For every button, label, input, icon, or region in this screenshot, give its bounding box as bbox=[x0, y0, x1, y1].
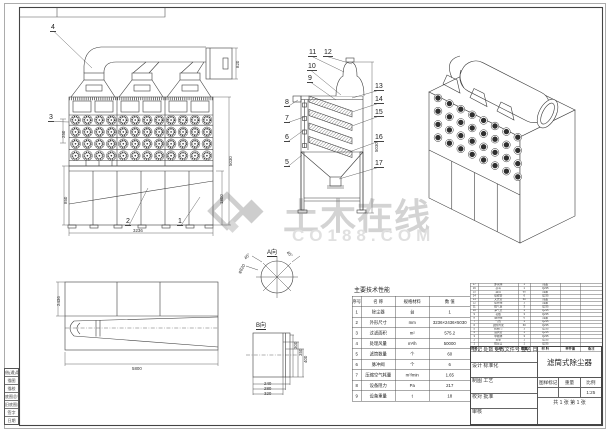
tech-cell: 个 bbox=[395, 349, 429, 360]
tech-cell: 个 bbox=[395, 359, 429, 370]
tech-cell: 217 bbox=[429, 380, 470, 391]
tech-cell: m³/min bbox=[395, 370, 429, 381]
margin-row: 借(通)用件登记 bbox=[5, 369, 18, 377]
tech-row: 9设备重量t18 bbox=[352, 391, 470, 402]
leader-line bbox=[288, 130, 304, 142]
scale-value-cell bbox=[559, 388, 580, 397]
callout-14: 14 bbox=[374, 96, 384, 104]
margin-row: 旧底图总号 bbox=[5, 401, 18, 409]
leader-line bbox=[181, 197, 200, 226]
title-block-scale-values: 1:25 bbox=[538, 388, 601, 398]
leader-line bbox=[54, 32, 92, 69]
callout-17: 17 bbox=[374, 160, 384, 168]
dimension-text: 2436 bbox=[56, 296, 61, 306]
detail-b-title: B向 bbox=[256, 320, 266, 330]
scale-value-cell bbox=[538, 388, 559, 397]
tech-row: 8设备阻力Pa217 bbox=[352, 380, 470, 391]
drawing-title: 滤筒式除尘器 bbox=[538, 347, 601, 378]
tech-cell: 9 bbox=[352, 391, 361, 402]
scale-value-cell: 1:25 bbox=[581, 388, 601, 397]
margin-row: 底图总号 bbox=[5, 393, 18, 401]
tech-cell: 60 bbox=[429, 349, 470, 360]
tech-row: 7压缩空气耗量m³/min1.65 bbox=[352, 370, 470, 381]
tech-cell: 1 bbox=[429, 307, 470, 318]
isometric-view bbox=[429, 56, 575, 243]
detail-a-title: A向 bbox=[267, 247, 277, 257]
tech-cell: 50000 bbox=[429, 338, 470, 349]
callout-10: 10 bbox=[307, 63, 317, 71]
tech-cell: 575.2 bbox=[429, 328, 470, 339]
dimension-text: 320 bbox=[264, 391, 271, 396]
leader-line bbox=[52, 122, 69, 123]
tech-header: 数 值 bbox=[429, 296, 470, 307]
scale-header-cell: 比例 bbox=[581, 378, 601, 387]
scale-header-cell: 重量 bbox=[559, 378, 580, 387]
tech-cell: 3 bbox=[352, 328, 361, 339]
tech-cell: 过滤面积 bbox=[361, 328, 395, 339]
title-block: 标记 处数 更改文件号 签名 日期设计 标准化制图 工艺校对 批准审核 滤筒式除… bbox=[470, 346, 602, 425]
callout-7: 7 bbox=[284, 115, 290, 123]
tech-cell: 6 bbox=[429, 359, 470, 370]
tech-cell: 6 bbox=[352, 359, 361, 370]
tech-row: 2外形尺寸mm3236×2436×5030 bbox=[352, 317, 470, 328]
leader-line bbox=[311, 83, 336, 101]
tech-header: 序号 bbox=[352, 296, 361, 307]
callout-2: 2 bbox=[125, 218, 131, 226]
tech-cell: 压缩空气耗量 bbox=[361, 370, 395, 381]
title-block-main: 滤筒式除尘器 图样标记重量比例 1:25 共 1 张 第 1 张 bbox=[538, 347, 601, 424]
tech-cell: 1.65 bbox=[429, 370, 470, 381]
callout-12: 12 bbox=[323, 49, 333, 57]
leader-line bbox=[288, 117, 304, 123]
callout-1: 1 bbox=[177, 218, 183, 226]
tech-cell: 5 bbox=[352, 349, 361, 360]
tech-header: 名 称 bbox=[361, 296, 395, 307]
callout-11: 11 bbox=[308, 49, 317, 57]
leader-line bbox=[288, 155, 302, 167]
title-block-scale-headers: 图样标记重量比例 bbox=[538, 378, 601, 388]
tech-cell: 脉冲阀 bbox=[361, 359, 395, 370]
tech-table-title: 主要技术性能 bbox=[354, 285, 472, 294]
dimension-text: 5030 bbox=[374, 142, 379, 152]
tech-cell: m² bbox=[395, 328, 429, 339]
callout-5: 5 bbox=[284, 159, 290, 167]
tech-cell: 18 bbox=[429, 391, 470, 402]
dimension-text: 400 bbox=[303, 356, 308, 363]
front-cartridge-grid bbox=[71, 115, 212, 161]
tech-cell: 除尘器 bbox=[361, 307, 395, 318]
dimension-text: 820 bbox=[235, 61, 240, 68]
margin-row: 日期 bbox=[5, 417, 18, 424]
callout-9: 9 bbox=[307, 75, 313, 83]
margin-row: 描图 bbox=[5, 377, 18, 385]
tech-cell: 设备重量 bbox=[361, 391, 395, 402]
tech-cell: 3236×2436×5030 bbox=[429, 317, 470, 328]
dimension-text: 1800 bbox=[219, 194, 224, 204]
title-block-row: 标记 处数 更改文件号 签名 日期 bbox=[471, 347, 537, 363]
callout-13: 13 bbox=[374, 83, 384, 91]
tech-row: 5滤筒数量个60 bbox=[352, 349, 470, 360]
dimension-text: 5800 bbox=[132, 366, 142, 371]
leader-line bbox=[312, 57, 344, 73]
scale-header-cell: 图样标记 bbox=[538, 378, 559, 387]
tech-row: 1除尘器台1 bbox=[352, 307, 470, 318]
bom-table: 17卸灰阀1成品16灰斗1Q23515滤筒60成品14喷吹管6Q23513文氏管… bbox=[470, 283, 602, 353]
tech-cell: 4 bbox=[352, 338, 361, 349]
tech-cell: 处理风量 bbox=[361, 338, 395, 349]
leader-line bbox=[129, 188, 148, 226]
duct-plan-view bbox=[65, 282, 218, 350]
callout-8: 8 bbox=[284, 99, 290, 107]
dimension-text: 5030 bbox=[228, 156, 233, 166]
callout-3: 3 bbox=[48, 114, 54, 122]
title-block-signatures: 标记 处数 更改文件号 签名 日期设计 标准化制图 工艺校对 批准审核 bbox=[471, 347, 538, 424]
tech-cell: 8 bbox=[352, 380, 361, 391]
tech-cell: 台 bbox=[395, 307, 429, 318]
title-block-row: 校对 批准 bbox=[471, 394, 537, 410]
margin-block: 借(通)用件登记描图描校底图总号旧底图总号签字日期 bbox=[4, 368, 19, 425]
tech-row: 3过滤面积m²575.2 bbox=[352, 328, 470, 339]
tech-row: 6脉冲阀个6 bbox=[352, 359, 470, 370]
tech-cell: 滤筒数量 bbox=[361, 349, 395, 360]
tech-table: 主要技术性能 序号名 称规格材料数 值 1除尘器台12外形尺寸mm3236×24… bbox=[352, 285, 472, 432]
dimension-text: 3236 bbox=[133, 228, 143, 233]
title-block-row: 审核 bbox=[471, 409, 537, 424]
title-block-row: 设计 标准化 bbox=[471, 363, 537, 379]
dimension-text: 850 bbox=[63, 197, 68, 204]
drawing-sheet: 土木在线 CO188.COM bbox=[0, 0, 610, 432]
tech-cell: 2 bbox=[352, 317, 361, 328]
callout-16: 16 bbox=[374, 134, 384, 142]
leader-line bbox=[311, 71, 341, 96]
dimension-text: 250 bbox=[61, 131, 66, 138]
tech-cell: t bbox=[395, 391, 429, 402]
tech-cell: mm bbox=[395, 317, 429, 328]
tech-row: 4处理风量m³/h50000 bbox=[352, 338, 470, 349]
circle-detail-view bbox=[246, 256, 300, 298]
tech-cell: 设备阻力 bbox=[361, 380, 395, 391]
callout-15: 15 bbox=[374, 109, 384, 117]
callout-4: 4 bbox=[50, 24, 56, 32]
tech-cell: 1 bbox=[352, 307, 361, 318]
revision-tab bbox=[20, 8, 166, 18]
margin-row: 描校 bbox=[5, 385, 18, 393]
callout-6: 6 bbox=[284, 134, 290, 142]
margin-row: 签字 bbox=[5, 409, 18, 417]
tech-cell: Pa bbox=[395, 380, 429, 391]
tech-cell: 7 bbox=[352, 370, 361, 381]
section-view bbox=[293, 58, 366, 213]
tech-cell: m³/h bbox=[395, 338, 429, 349]
tech-cell: 外形尺寸 bbox=[361, 317, 395, 328]
leader-line bbox=[352, 117, 378, 127]
title-block-row: 制图 工艺 bbox=[471, 378, 537, 394]
front-view bbox=[68, 47, 232, 228]
tech-header: 规格材料 bbox=[395, 296, 429, 307]
sheet-count: 共 1 张 第 1 张 bbox=[538, 398, 601, 424]
